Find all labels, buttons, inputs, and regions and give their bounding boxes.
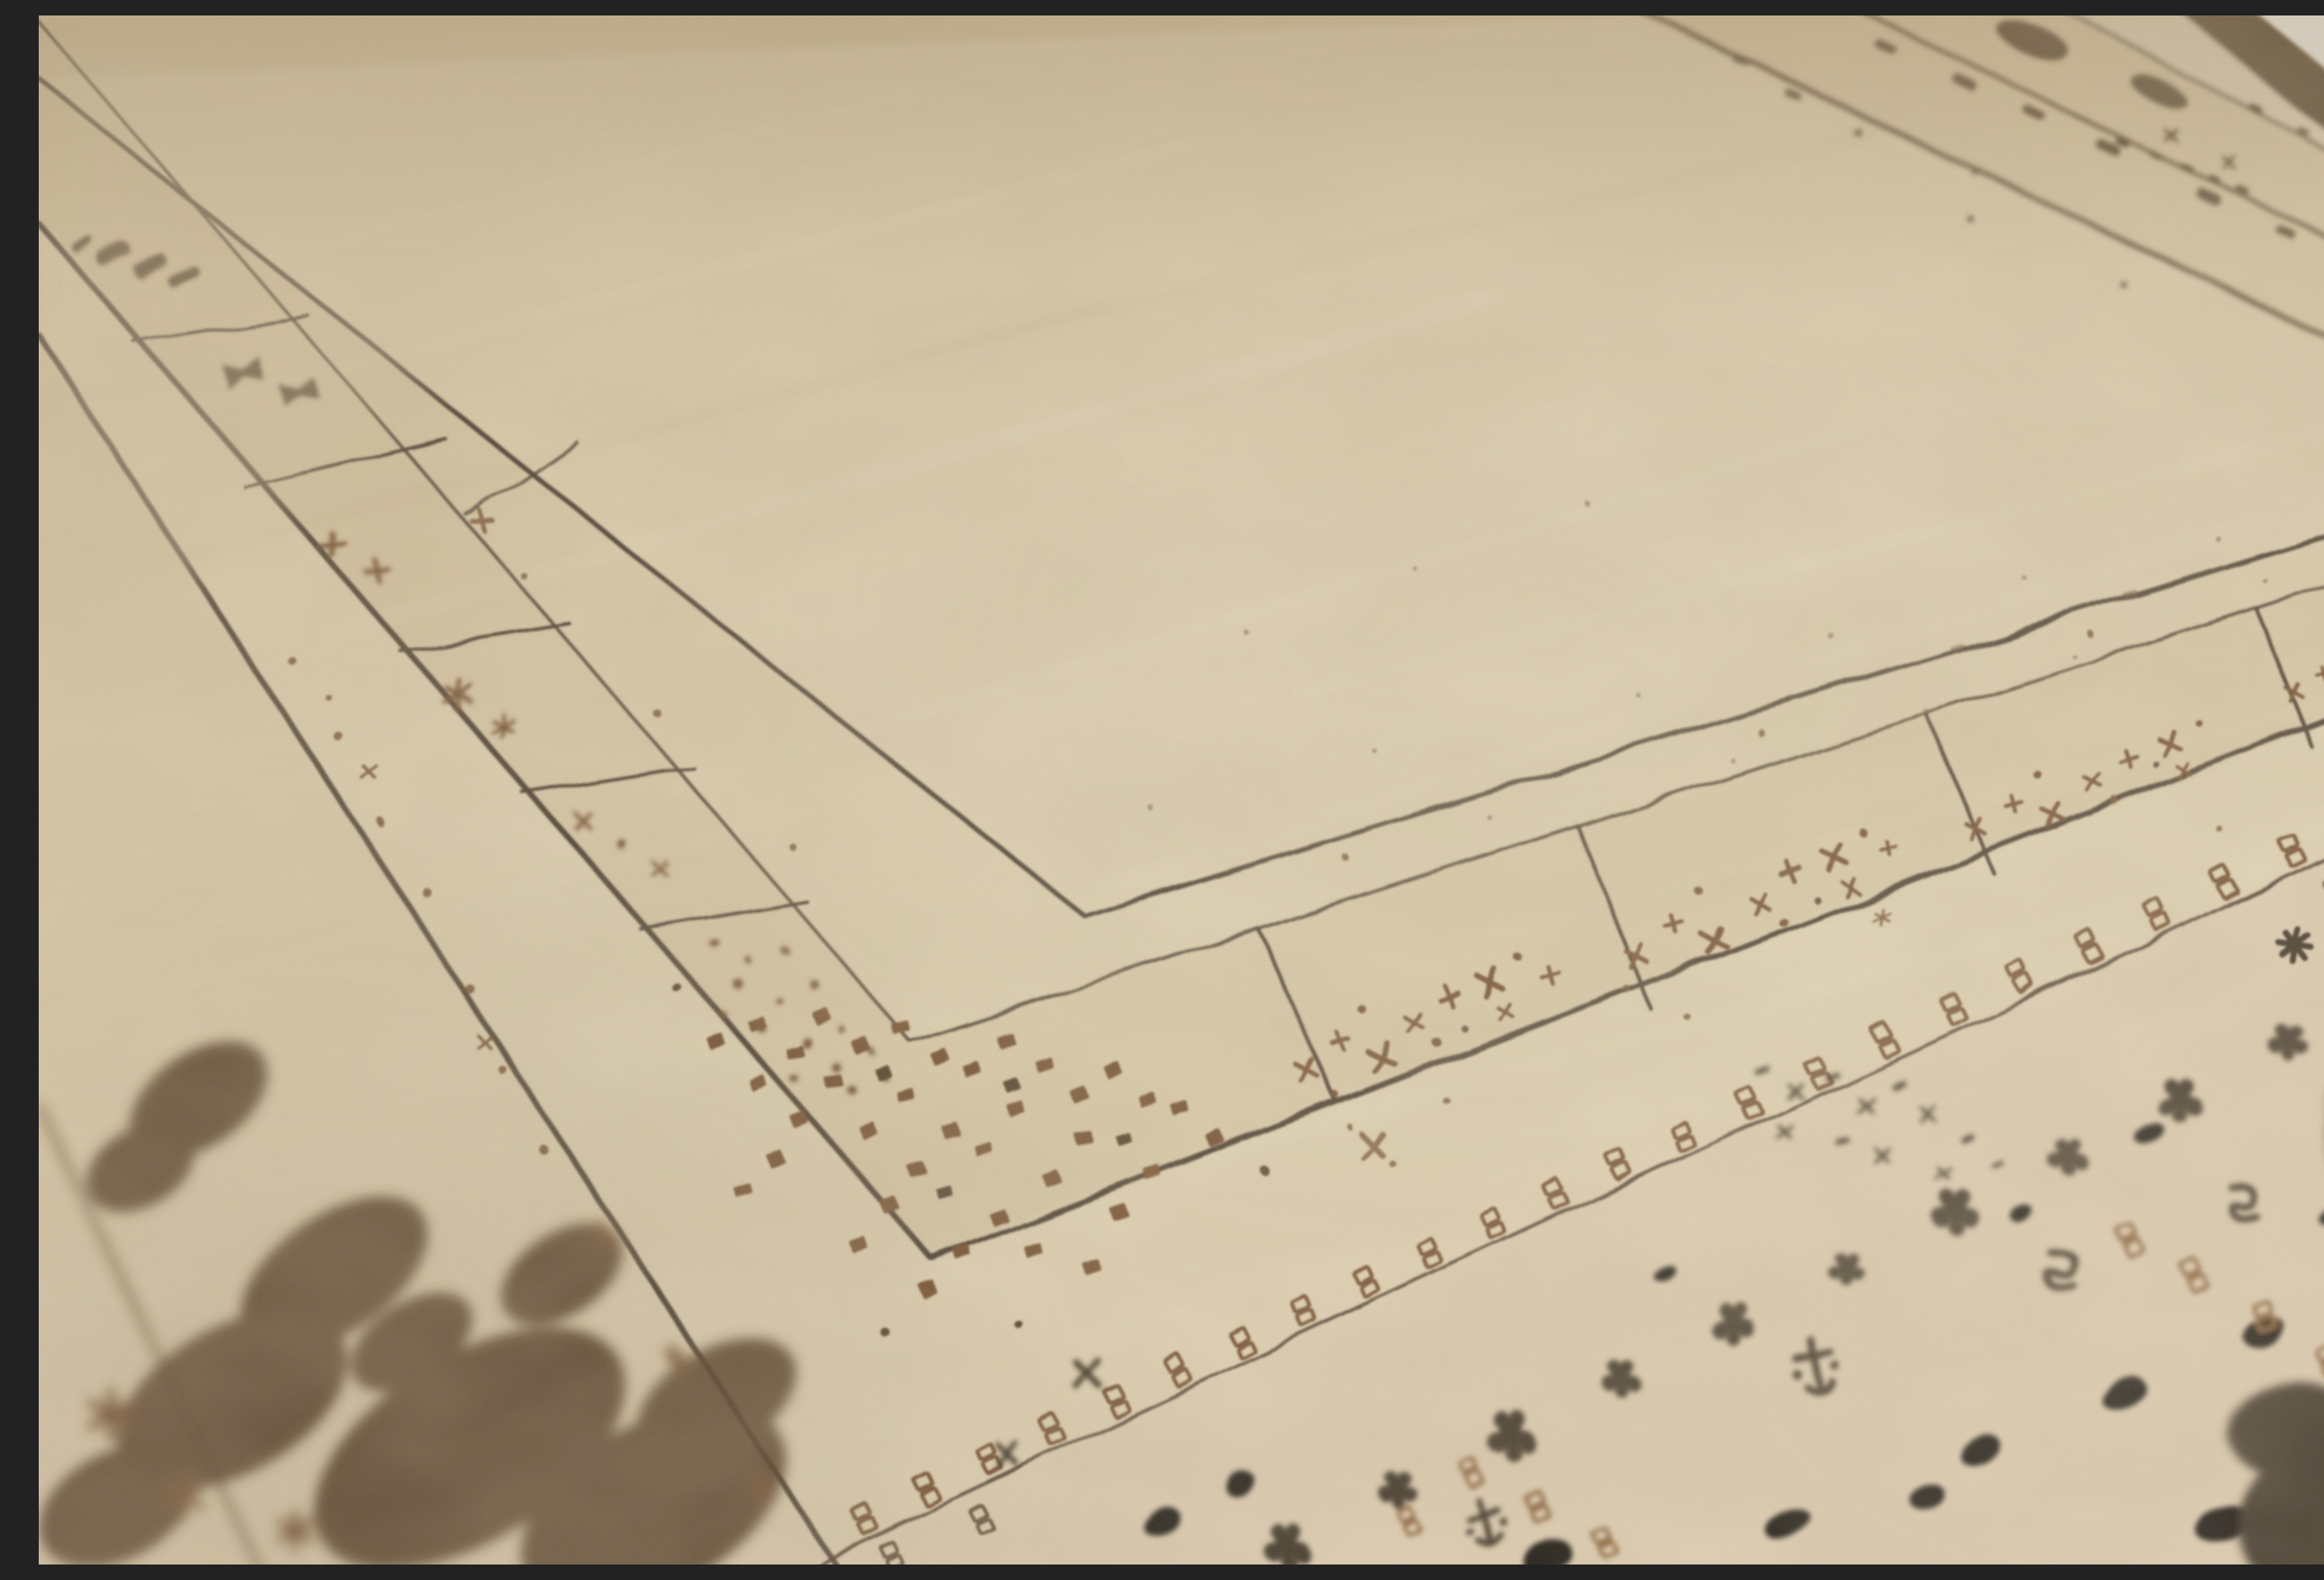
wool-grain (39, 15, 2324, 1565)
rug-photo-canvas: Beige wool rug close-up (39, 15, 2324, 1565)
rug-photo: Beige wool rug close-up (39, 15, 2324, 1565)
